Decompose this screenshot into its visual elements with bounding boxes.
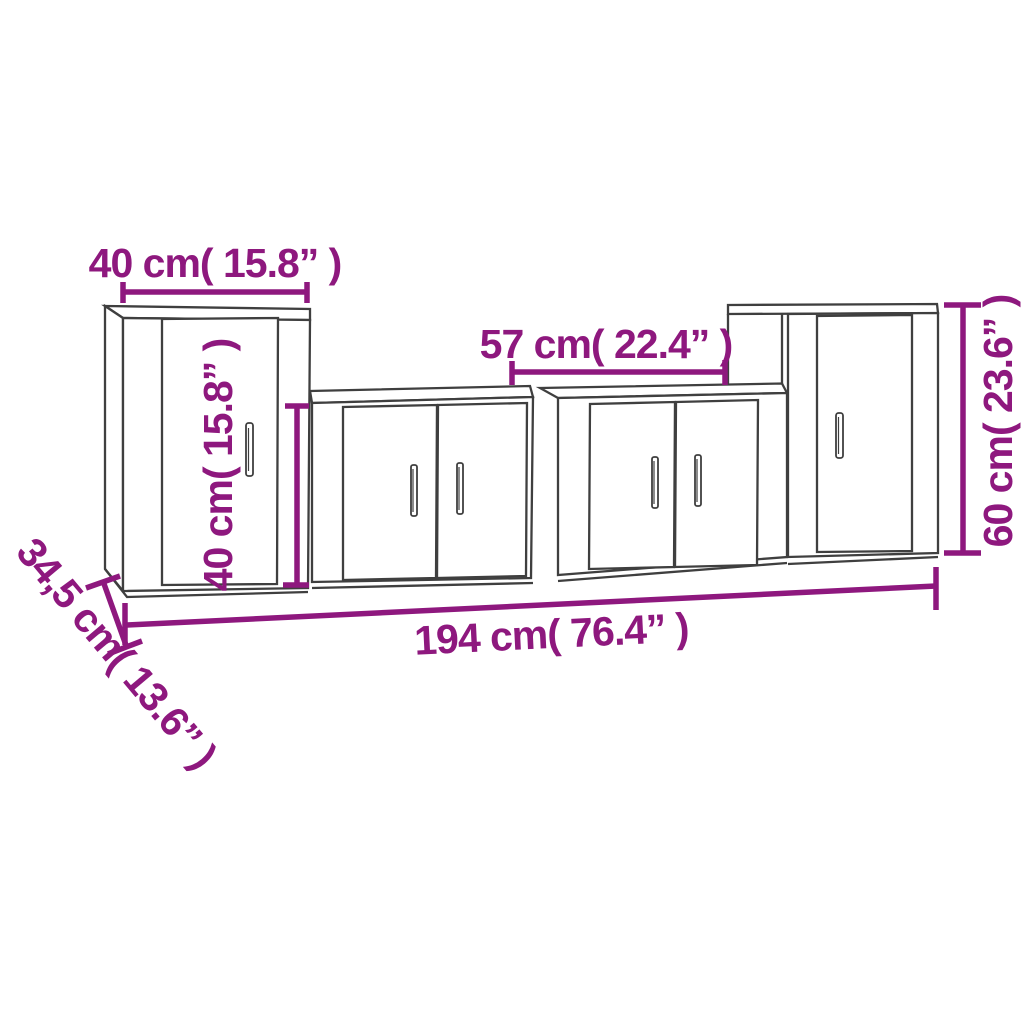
cabinet-left-door-handle [246, 423, 253, 476]
cabinet-low-2 [540, 384, 787, 582]
cabinet-low-2-door-right [675, 400, 758, 567]
cabinet-low-1 [310, 386, 533, 588]
cabinet-low-2-handle-right [695, 455, 701, 506]
furniture-dimension-diagram: 40 cm( 15.8” ) 57 cm( 22.4” ) 40 cm( 15.… [0, 0, 1024, 1024]
cabinet-right-door-handle [836, 413, 843, 458]
cabinet-low-1-door-right [437, 403, 527, 578]
door-handle [246, 423, 253, 476]
door-handle [652, 457, 658, 508]
cabinet-low-1-handle-right [457, 463, 463, 514]
door-handle [836, 413, 843, 458]
cabinet-left-side-panel [105, 306, 123, 591]
dim-label-cabinet-left-width: 40 cm( 15.8” ) [89, 240, 342, 286]
door-handle [411, 465, 417, 516]
dim-label-cabinet-left-height: 40 cm( 15.8” ) [195, 339, 241, 592]
product-dimension-image: 40 cm( 15.8” ) 57 cm( 22.4” ) 40 cm( 15.… [0, 0, 1024, 1024]
cabinet-low-1-door-left [343, 405, 437, 580]
cabinet-low-2-handle-left [652, 457, 658, 508]
cabinet-low-1-handle-left [411, 465, 417, 516]
cabinet-right-door [817, 315, 912, 552]
dim-label-cabinet-low-width: 57 cm( 22.4” ) [480, 321, 733, 367]
dim-label-cabinet-right-height: 60 cm( 23.6” ) [975, 295, 1021, 548]
dim-cabinet-left-width: 40 cm( 15.8” ) [89, 240, 342, 303]
door-handle [457, 463, 463, 514]
cabinet-low-2-door-left [589, 402, 675, 569]
door-handle [695, 455, 701, 506]
